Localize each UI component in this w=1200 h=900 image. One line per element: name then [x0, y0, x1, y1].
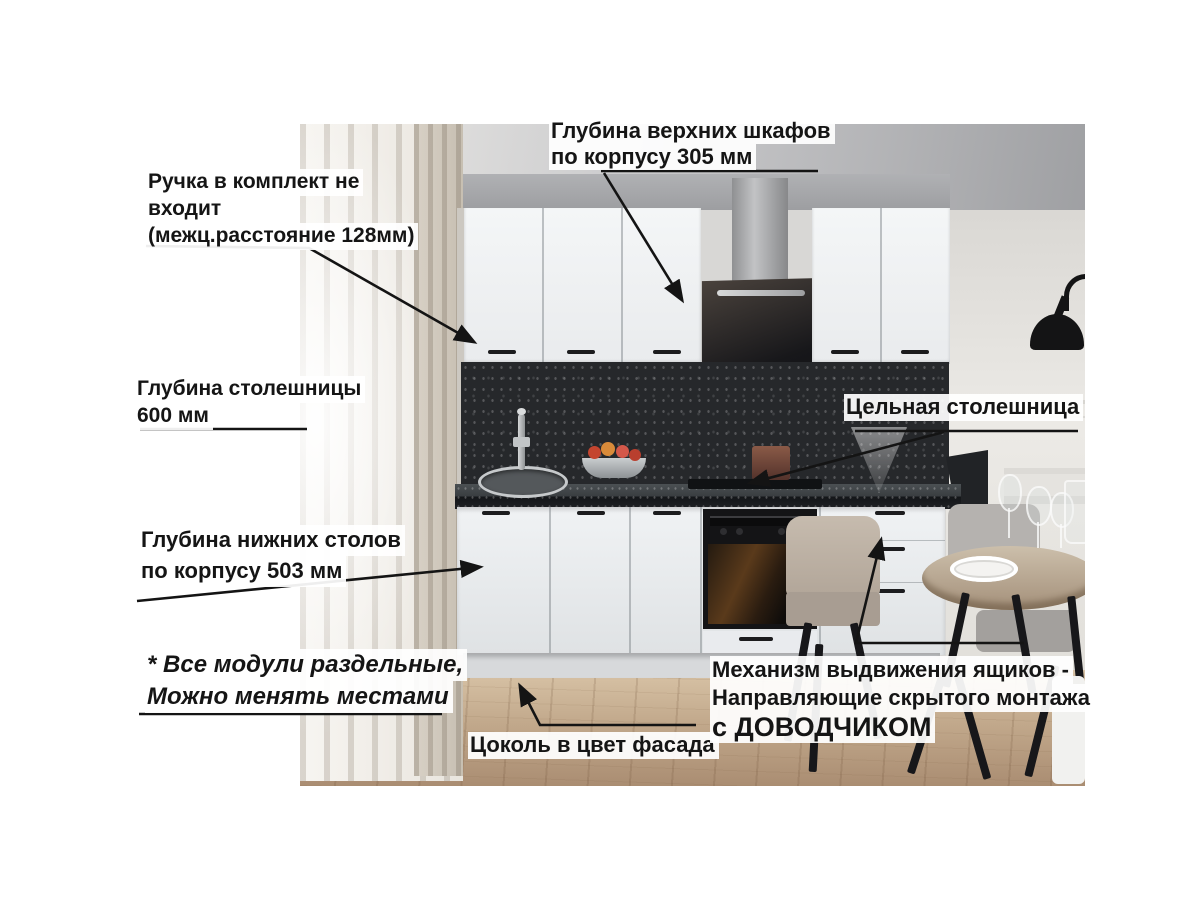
cabinet-handle — [482, 511, 510, 515]
annotation-line-emphasis: с ДОВОДЧИКОМ — [710, 712, 935, 743]
upper-cabinets-right — [812, 208, 950, 364]
drawer-handle — [739, 637, 773, 641]
annotation-countertop-depth: Глубина столешницы 600 мм — [135, 376, 365, 430]
cabinet-handle — [567, 350, 595, 354]
cabinet-handle — [653, 350, 681, 354]
annotation-line: Глубина нижних столов — [139, 525, 405, 556]
annotation-line: Глубина верхних шкафов — [549, 118, 835, 144]
drawer-handle — [875, 511, 905, 515]
door-seam — [621, 208, 623, 364]
cabinet-handle — [901, 350, 929, 354]
door-seam — [629, 507, 631, 655]
oven-knob — [736, 528, 743, 535]
hood-trim-bar — [717, 290, 805, 296]
annotation-line: входит — [146, 196, 225, 223]
annotation-line: * Все модули раздельные, — [145, 649, 467, 681]
oven-knob — [720, 528, 727, 535]
annotation-line: по корпусу 305 мм — [549, 144, 756, 170]
annotation-handle-note: Ручка в комплект не входит (межц.расстоя… — [146, 169, 418, 250]
fruit — [588, 446, 601, 459]
upper-cabinets-left — [464, 208, 701, 364]
cabinet-handle — [653, 511, 681, 515]
annotation-line: Ручка в комплект не — [146, 169, 363, 196]
plate — [950, 556, 1018, 582]
annotation-drawer-mechanism: Механизм выдвижения ящиков - Направляющи… — [710, 656, 1094, 743]
copper-pot — [752, 446, 790, 480]
wine-glass — [1026, 486, 1052, 526]
glass-stem — [1037, 522, 1039, 548]
annotation-solid-countertop: Цельная столешница — [844, 394, 1083, 421]
door-seam — [542, 208, 544, 364]
annotation-line: Цоколь в цвет фасада — [468, 732, 719, 759]
glass-stem — [1008, 508, 1010, 538]
ceiling-soffit-shadow — [458, 174, 950, 210]
cooktop — [688, 479, 822, 489]
fruit — [616, 445, 629, 458]
fruit-bowl — [582, 458, 646, 478]
annotation-line: Можно менять местами — [145, 681, 453, 713]
fruit — [629, 449, 641, 461]
door-seam — [549, 507, 551, 655]
wine-glass — [998, 474, 1022, 512]
annotation-line: (межц.расстояние 128мм) — [146, 223, 418, 250]
sink — [478, 466, 568, 498]
carafe — [1064, 480, 1085, 544]
dining-chair — [786, 516, 880, 596]
annotation-line: Глубина столешницы — [135, 376, 365, 403]
fruit — [601, 442, 615, 456]
faucet-cap — [517, 408, 526, 415]
annotation-line: Механизм выдвижения ящиков - — [710, 656, 1073, 684]
door-seam — [700, 507, 702, 655]
annotation-modules-note: * Все модули раздельные, Можно менять ме… — [145, 649, 467, 713]
annotation-line: Направляющие скрытого монтажа — [710, 684, 1094, 712]
annotation-line: 600 мм — [135, 403, 213, 430]
annotated-kitchen-image: Глубина верхних шкафов по корпусу 305 мм… — [0, 0, 1200, 900]
cabinet-handle — [831, 350, 859, 354]
hood-chimney — [732, 178, 788, 284]
annotation-base-cabinet-depth: Глубина нижних столов по корпусу 503 мм — [139, 525, 405, 587]
dining-chair-seat — [786, 592, 880, 626]
annotation-upper-cabinet-depth: Глубина верхних шкафов по корпусу 305 мм — [549, 118, 835, 170]
cabinet-handle — [488, 350, 516, 354]
glass-stem — [1060, 524, 1062, 548]
cabinet-handle — [577, 511, 605, 515]
annotation-plinth-note: Цоколь в цвет фасада — [468, 732, 719, 759]
annotation-line: Цельная столешница — [844, 394, 1083, 421]
annotation-line: по корпусу 503 мм — [139, 556, 346, 587]
faucet-joint — [513, 437, 530, 447]
door-seam — [880, 208, 882, 364]
oven-knob — [778, 528, 785, 535]
